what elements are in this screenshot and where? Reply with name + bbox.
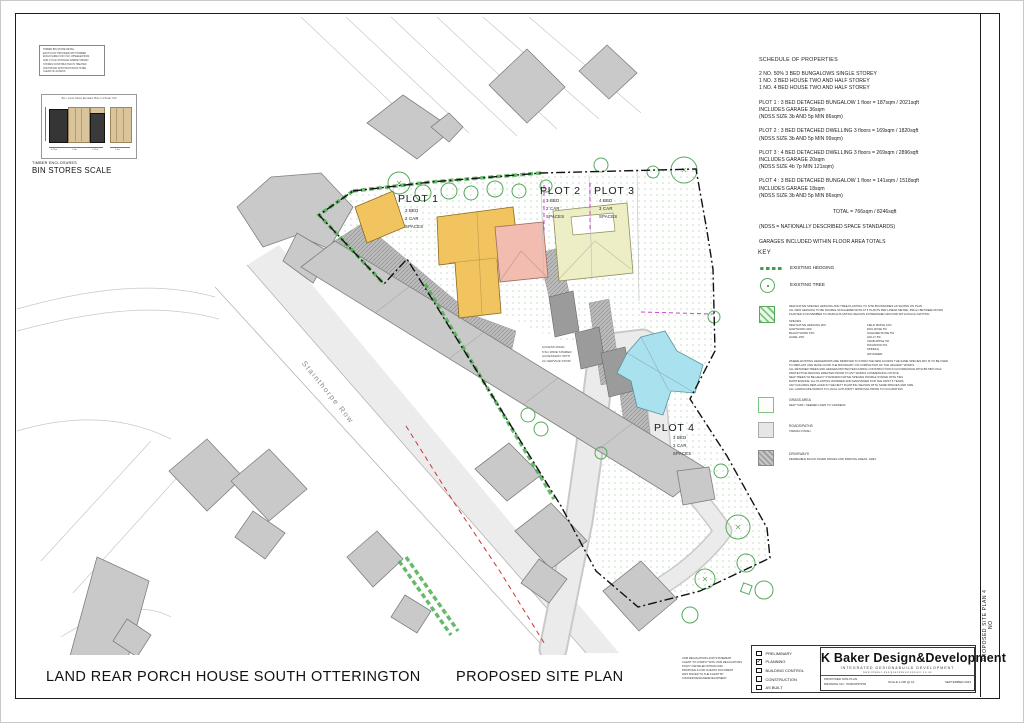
plot1-sub: 3 BED2 CARSPACES — [405, 207, 423, 231]
grass-key-label: GRASS AREA NEW TURF / SEEDED LAWN TO GAR… — [789, 398, 845, 407]
bin-dark-1 — [49, 109, 68, 143]
planting-intro-line: PLANTED IN NOVEMBER TO MARCH PLANTING SE… — [789, 312, 948, 316]
checkbox — [756, 651, 762, 657]
schedule-of-properties: SCHEDULE OF PROPERTIES 2 NO. 50% 3 BED B… — [759, 57, 971, 245]
bin-store-caption-small: TIMBER ENCLOSURES — [32, 161, 77, 165]
drawing-scale: SCALE 1:200 @ A1 — [885, 676, 939, 688]
company-title-block: K Baker Design&Development INTEGRATED DE… — [820, 647, 975, 691]
bin-dark-2 — [90, 113, 105, 143]
door-plank-line — [81, 107, 82, 141]
drawing-info-row: PROPOSED SITE PLAN DRAWING NO : PMR/OPP/… — [821, 675, 974, 688]
dim-label: 1.5m — [72, 149, 77, 151]
roads-swatch — [758, 422, 774, 438]
status-row-construction: CONSTRUCTION — [756, 675, 804, 684]
status-checkboxes: PRELIMINARY ✓ PLANNING BUILDING CONTROL … — [756, 649, 804, 692]
bin-panel-title: Bin + Cycle Stores Elevation Plots 1-4 S… — [42, 97, 136, 100]
schedule-summary-line: 2 NO. 50% 3 BED BUNGALOWS SINGLE STOREY — [759, 71, 971, 78]
checkbox — [756, 668, 762, 674]
species-item: WAYFARER — [867, 352, 894, 356]
status-row-preliminary: PRELIMINARY — [756, 649, 804, 658]
door-plank-line — [75, 107, 76, 141]
drawing-title: PROPOSED SITE PLAN — [456, 669, 624, 685]
checkbox-checked: ✓ — [756, 659, 762, 665]
bin-store-caption: BIN STORES SCALE — [32, 166, 112, 175]
dimension-line — [110, 147, 130, 148]
height-dimension-line — [45, 107, 46, 141]
schedule-plot3: PLOT 3 : 4 BED DETACHED DWELLING 3 floor… — [759, 150, 971, 172]
status-row-building-control: BUILDING CONTROL — [756, 666, 804, 675]
species-item: HAZEL 15% — [789, 335, 867, 339]
sheet-side-label: PROPOSED SITE PLAN 4 NO — [982, 587, 996, 663]
access-note-line: 2m SERVICE STRIP — [542, 359, 572, 364]
hedging-symbol — [760, 267, 784, 270]
bin-store-note-box: TIMBER BIN STORE DETAILEACH PLOT PROVIDE… — [39, 45, 105, 76]
plot2-building — [495, 222, 548, 282]
cdm-statement: CDM REGULATIONS 2015 STATEMENTCLIENT TO … — [682, 657, 748, 681]
bin-side-panel — [110, 107, 132, 143]
project-title: LAND REAR PORCH HOUSE SOUTH OTTERINGTON — [46, 669, 421, 685]
company-web: www.kbaker-designanddevelopment.co.uk — [821, 671, 974, 674]
panel-plank-line — [123, 107, 124, 141]
plot3-label: PLOT 3 — [594, 185, 635, 197]
company-name: K Baker Design&Development — [821, 651, 974, 665]
schedule-total: TOTAL = 766sqm / 8246sqft — [833, 209, 971, 215]
cdm-line: K BAKER DESIGN&DEVELOPMENT — [682, 677, 748, 681]
drawing-sheet: PLOT 1 3 BED2 CARSPACES PLOT 2 3 BED2 CA… — [0, 0, 1024, 723]
note-line: CLEAR OF ACCESS — [43, 70, 101, 74]
status-row-as-built: AS BUILT — [756, 683, 804, 692]
roads-key-label: ROADS/PATHS TARMAC FINISH — [789, 424, 813, 433]
ndss-note: (NDSS = NATIONALLY DESCRIBED SPACE STAND… — [759, 224, 971, 230]
planting-notes: NEW NATIVE SPECIES HEDGING AND TREE PLAN… — [789, 304, 948, 391]
grass-swatch — [758, 397, 774, 413]
drawing-date: SEPTEMBER 2023 — [939, 676, 974, 688]
plot2-label: PLOT 2 — [540, 185, 581, 197]
bin-door-1 — [68, 107, 90, 143]
driveways-key-label: DRIVEWAYS PERMEABLE BLOCK PAVED DRIVES A… — [789, 452, 877, 461]
plot4-label: PLOT 4 — [654, 422, 695, 434]
tree-symbol — [760, 278, 775, 293]
access-road-note: ACCESS ROAD5.5m WIDE SHAREDACCESSWAY WIT… — [542, 345, 572, 364]
schedule-heading: SCHEDULE OF PROPERTIES — [759, 57, 971, 63]
drawing-info: PROPOSED SITE PLAN DRAWING NO : PMR/OPP/… — [821, 676, 885, 688]
checkbox — [756, 676, 762, 682]
plot1-label: PLOT 1 — [398, 193, 439, 205]
bin-store-panel: Bin + Cycle Stores Elevation Plots 1-4 S… — [41, 94, 137, 159]
status-row-planning: ✓ PLANNING — [756, 658, 804, 667]
panel-plank-line — [116, 107, 117, 141]
dim-label: 0.75m — [51, 149, 57, 151]
dim-label: 0.75m — [92, 149, 98, 151]
plot4-sub: 3 BED2 CARSPACES — [673, 434, 691, 458]
key-tree-row: EXISTING TREE — [758, 278, 773, 293]
planting-note-line: ALL LANDSCAPE WORKS TO LOCAL AUTHORITY A… — [789, 387, 948, 391]
schedule-plot2: PLOT 2 : 3 BED DETACHED DWELLING 3 floor… — [759, 128, 971, 142]
key-panel: KEY EXISTING HEDGING EXISTING TREE NEW N… — [758, 250, 974, 256]
schedule-plot4: PLOT 4 : 3 BED DETACHED BUNGALOW 1 floor… — [759, 178, 971, 200]
plot2-sub: 3 BED2 CARSPACES — [546, 197, 564, 221]
dimension-line — [49, 147, 103, 148]
schedule-summary-line: 1 NO. 4 BED HOUSE TWO AND HALF STOREY — [759, 85, 971, 92]
key-heading: KEY — [758, 250, 974, 256]
company-tagline: INTEGRATED DESIGN&BUILD DEVELOPMENT — [821, 666, 974, 670]
plot3-sub: 4 BED3 CARSPACES — [599, 197, 617, 221]
schedule-plot1: PLOT 1 : 3 BED DETACHED BUNGALOW 1 floor… — [759, 100, 971, 122]
schedule-summary-line: 1 NO. 3 BED HOUSE TWO AND HALF STOREY — [759, 78, 971, 85]
dim-label: 1.5m — [115, 149, 120, 151]
driveways-swatch — [758, 450, 774, 466]
new-planting-swatch — [759, 306, 775, 323]
garages-note: GARAGES INCLUDED WITHIN FLOOR AREA TOTAL… — [759, 239, 971, 245]
checkbox — [756, 685, 762, 691]
